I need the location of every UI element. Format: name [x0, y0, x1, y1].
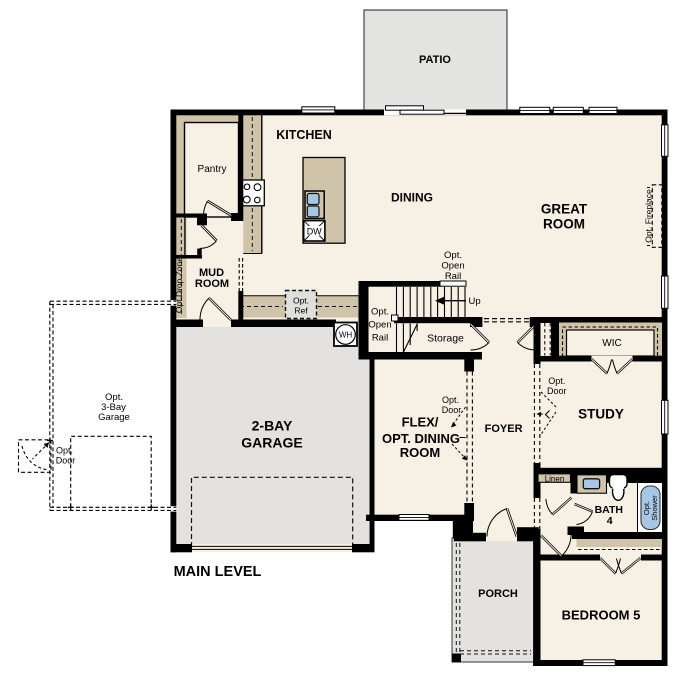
- svg-text:Door: Door: [56, 456, 76, 466]
- svg-text:Open: Open: [441, 261, 464, 272]
- svg-text:Garage: Garage: [98, 412, 130, 423]
- svg-text:Opt.: Opt.: [371, 307, 389, 318]
- svg-text:STUDY: STUDY: [578, 407, 624, 422]
- svg-text:Ref: Ref: [294, 306, 308, 316]
- svg-text:Door: Door: [547, 386, 567, 396]
- svg-text:ROOM: ROOM: [400, 445, 440, 460]
- svg-text:Opt.: Opt.: [548, 376, 565, 386]
- svg-text:Rail: Rail: [372, 333, 388, 344]
- svg-text:Pantry: Pantry: [198, 164, 227, 175]
- svg-text:PATIO: PATIO: [419, 54, 451, 66]
- svg-text:Opt. Fireplace: Opt. Fireplace: [644, 189, 654, 243]
- svg-text:GARAGE: GARAGE: [241, 435, 302, 451]
- svg-text:MAIN LEVEL: MAIN LEVEL: [174, 564, 262, 580]
- svg-text:Up: Up: [469, 296, 481, 307]
- svg-text:WH: WH: [339, 331, 353, 340]
- svg-text:FLEX/: FLEX/: [402, 415, 439, 430]
- svg-text:2-BAY: 2-BAY: [252, 418, 293, 434]
- svg-text:Opt.: Opt.: [442, 395, 459, 405]
- svg-text:Opt.: Opt.: [444, 250, 462, 261]
- svg-text:ROOM: ROOM: [195, 278, 229, 290]
- svg-text:DW: DW: [307, 226, 322, 236]
- svg-text:OPT. DINING: OPT. DINING: [382, 431, 460, 446]
- svg-text:PORCH: PORCH: [478, 588, 518, 600]
- svg-text:GREAT: GREAT: [541, 202, 588, 217]
- svg-text:FOYER: FOYER: [485, 423, 523, 435]
- svg-text:BEDROOM 5: BEDROOM 5: [562, 608, 641, 623]
- svg-text:Open: Open: [368, 320, 391, 331]
- svg-text:Door: Door: [442, 405, 462, 415]
- svg-text:Opt.: Opt.: [56, 446, 73, 456]
- svg-text:KITCHEN: KITCHEN: [276, 128, 332, 142]
- svg-text:Opt.: Opt.: [293, 296, 309, 306]
- svg-text:Linen: Linen: [545, 474, 565, 483]
- svg-text:Storage: Storage: [427, 333, 464, 345]
- svg-text:Rail: Rail: [445, 271, 461, 282]
- svg-text:DINING: DINING: [391, 191, 433, 205]
- svg-text:Shower: Shower: [650, 495, 659, 521]
- svg-text:ROOM: ROOM: [543, 217, 585, 232]
- svg-text:WIC: WIC: [602, 338, 621, 349]
- svg-text:4: 4: [607, 515, 613, 527]
